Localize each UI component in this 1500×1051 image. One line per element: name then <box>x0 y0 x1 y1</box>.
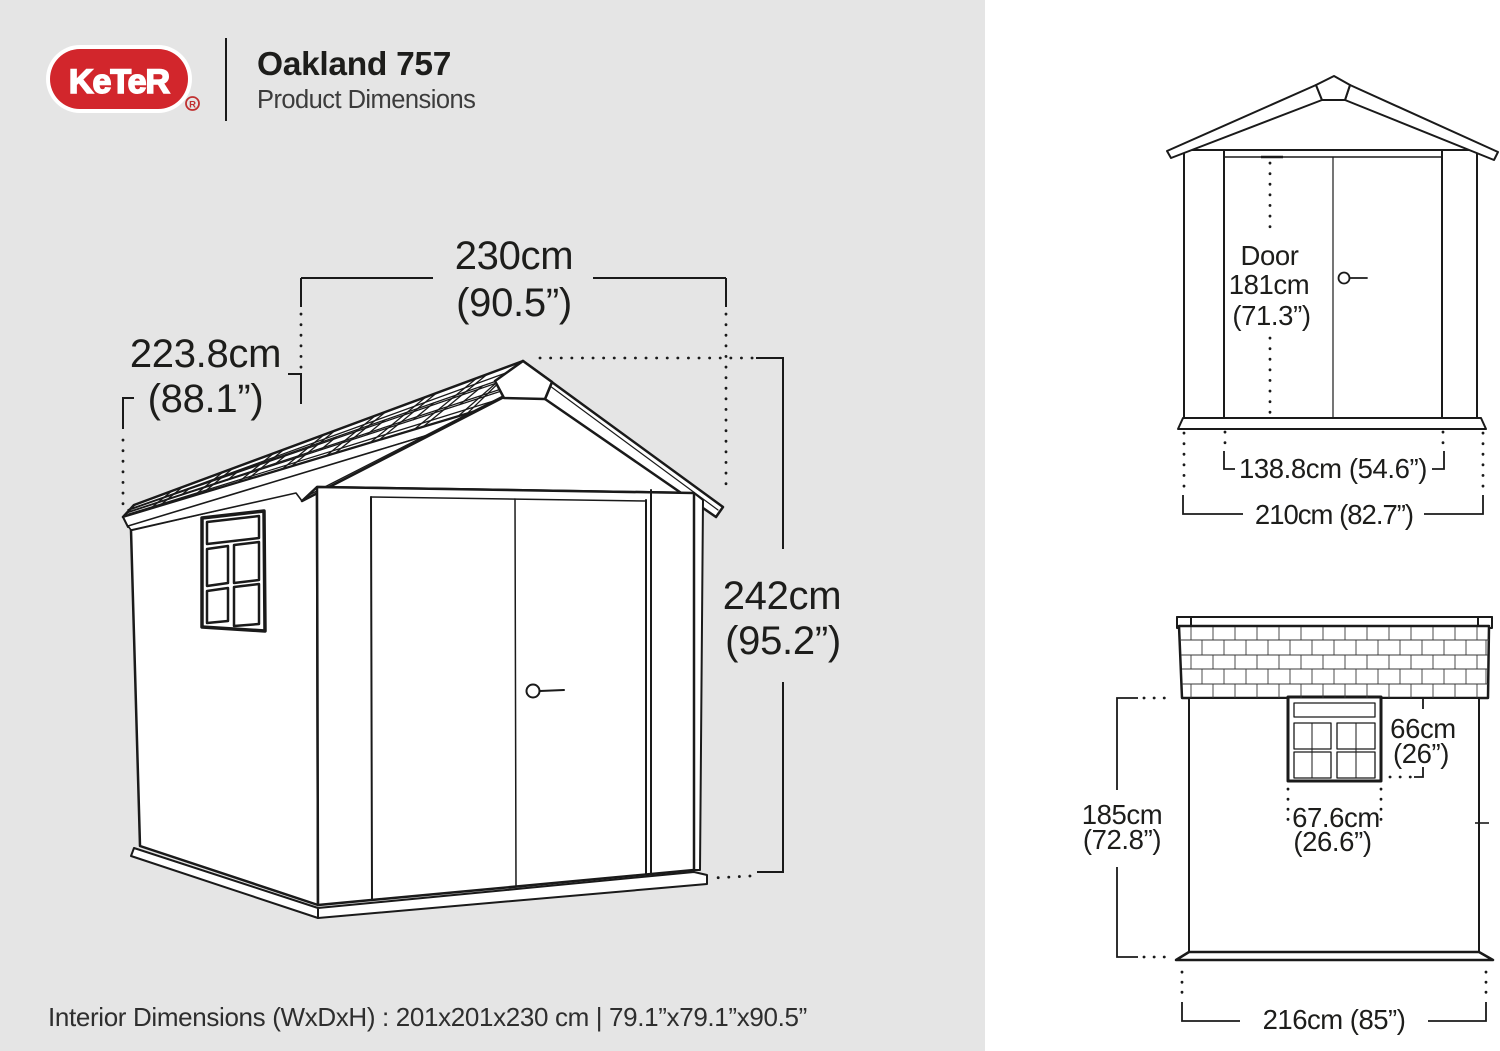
svg-text:(90.5”): (90.5”) <box>456 281 572 325</box>
svg-text:R: R <box>189 100 196 111</box>
svg-text:(26.6”): (26.6”) <box>1293 826 1371 857</box>
svg-text:(95.2”): (95.2”) <box>725 619 841 663</box>
svg-text:138.8cm (54.6”): 138.8cm (54.6”) <box>1239 453 1427 484</box>
svg-text:Interior Dimensions (WxDxH) :: Interior Dimensions (WxDxH) : 201x201x23… <box>48 1002 807 1032</box>
svg-text:Product Dimensions: Product Dimensions <box>257 86 475 114</box>
svg-text:216cm (85”): 216cm (85”) <box>1263 1004 1406 1035</box>
svg-text:(72.8”): (72.8”) <box>1083 824 1161 855</box>
svg-text:Oakland 757: Oakland 757 <box>257 46 451 83</box>
svg-text:(71.3”): (71.3”) <box>1232 300 1310 331</box>
svg-text:(26”): (26”) <box>1393 738 1449 769</box>
svg-text:KeTeR: KeTeR <box>69 63 170 101</box>
svg-text:230cm: 230cm <box>455 234 574 278</box>
svg-text:181cm: 181cm <box>1229 269 1310 300</box>
svg-text:(88.1”): (88.1”) <box>148 377 264 421</box>
svg-text:210cm (82.7”): 210cm (82.7”) <box>1255 499 1413 530</box>
svg-text:223.8cm: 223.8cm <box>130 332 281 376</box>
svg-text:Door: Door <box>1240 240 1298 271</box>
svg-text:242cm: 242cm <box>723 574 842 618</box>
